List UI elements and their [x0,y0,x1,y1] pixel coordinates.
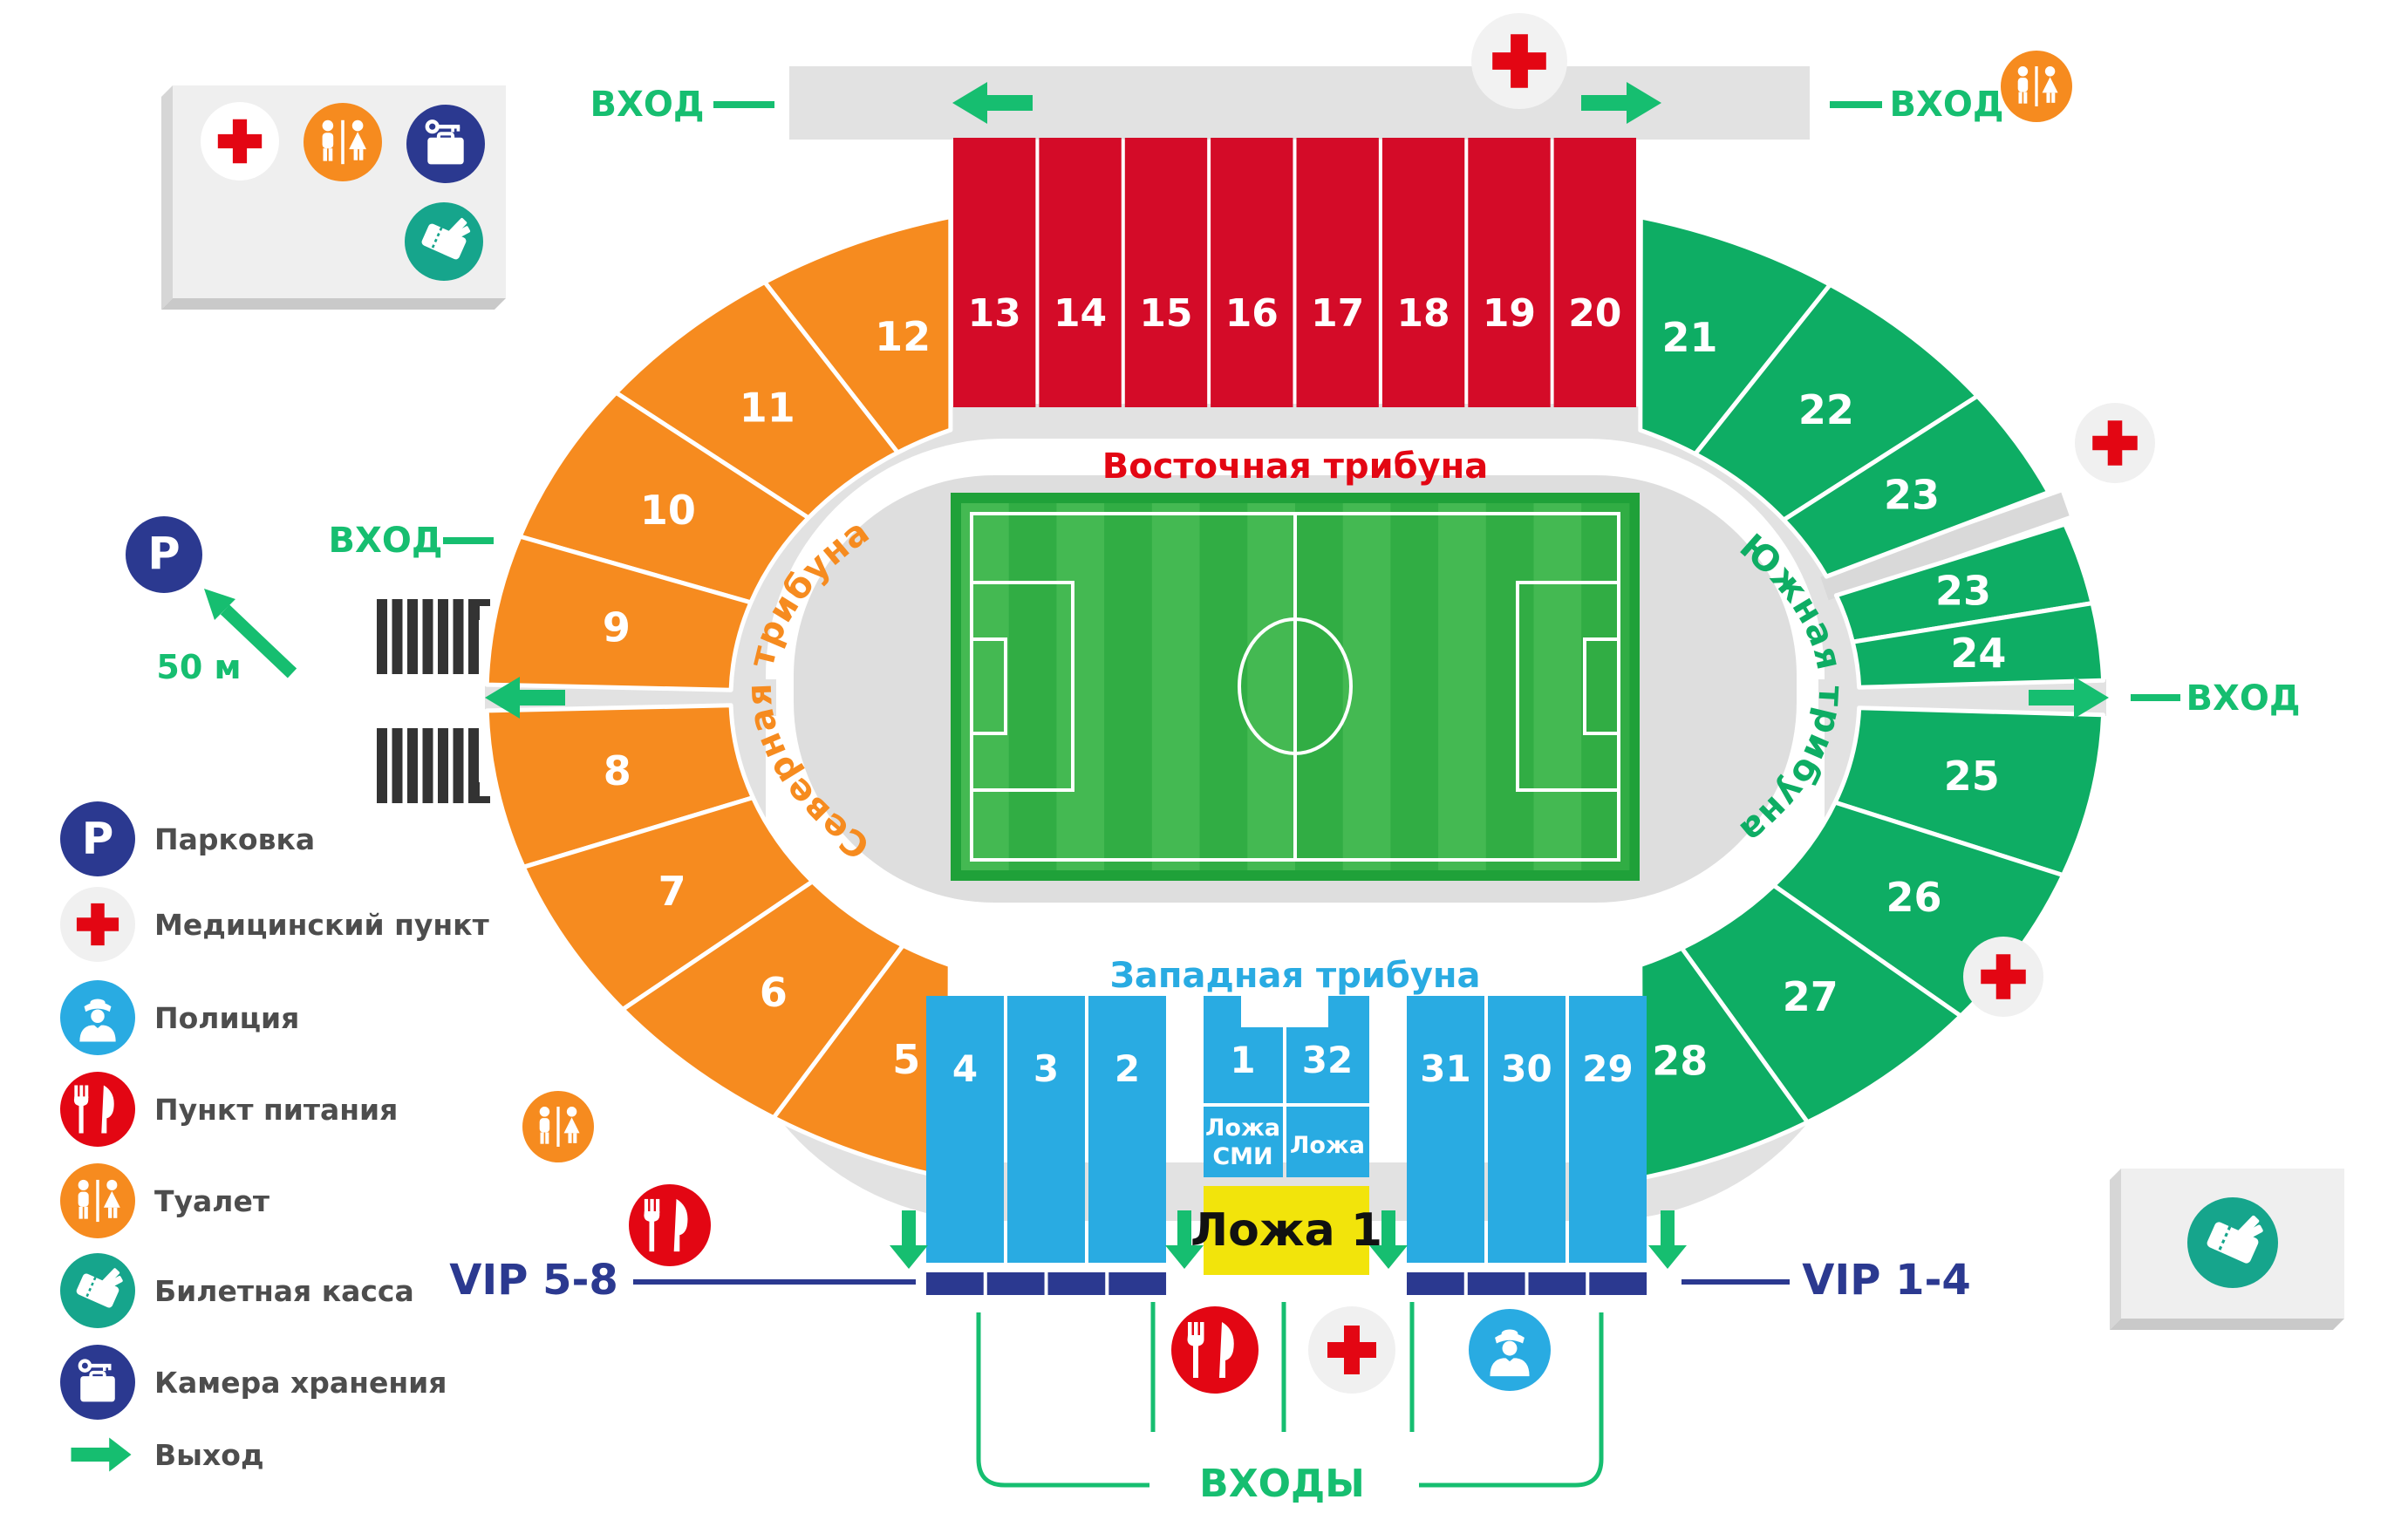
section-8-north-label[interactable]: 8 [604,747,631,794]
section-6-north-label[interactable]: 6 [760,969,788,1016]
vip-5-8-strip[interactable] [1108,1272,1166,1295]
exit-icon [72,1437,132,1471]
section-19-east[interactable] [1468,138,1550,407]
section-30-west-label[interactable]: 30 [1501,1047,1552,1090]
section-2-west-label[interactable]: 2 [1115,1047,1140,1090]
medical-icon [1308,1306,1395,1394]
field-stripe [1390,503,1438,870]
field-stripe [961,503,1009,870]
turnstile-gates [377,599,490,674]
legend-item-exit: Выход [72,1437,264,1472]
vip-1-4-strip[interactable] [1529,1272,1586,1295]
section-28-south-label[interactable]: 28 [1652,1038,1708,1085]
entrance-label-mid-right: ВХОД [2186,678,2301,719]
football-field [951,493,1640,881]
parking-icon-glyph: P [82,813,114,863]
section-17-east-label[interactable]: 17 [1311,291,1364,336]
west-notch [1241,994,1328,1027]
stadium-map: 1211109876521222323242526272813141516171… [0,0,2408,1520]
section-23-south-label[interactable]: 23 [1884,472,1940,519]
legend-label: Билетная касса [154,1274,414,1308]
entrance-label-top-left: ВХОД [590,85,705,125]
field-stripe [1247,503,1295,870]
section-31-west[interactable] [1407,996,1484,1263]
services-box-side [161,85,173,310]
vip-1-4-label[interactable]: VIP 1-4 [1802,1256,1971,1305]
section-20-east-label[interactable]: 20 [1568,291,1621,336]
section-15-east-label[interactable]: 15 [1139,291,1192,336]
parking-icon-glyph: P [147,529,180,581]
food-icon [1171,1306,1259,1394]
entrance-down-arrow-icon [890,1210,928,1269]
field-stripe [1295,503,1343,870]
legend-item-storage: Камера хранения [60,1345,447,1420]
section-2-west[interactable] [1088,996,1166,1263]
legend-item-toilet: Туалет [60,1163,269,1238]
section-3-west[interactable] [1007,996,1085,1263]
section-4-west[interactable] [926,996,1004,1263]
section-23-south-label[interactable]: 23 [1935,568,1991,615]
storage-icon [60,1345,135,1420]
section-24-south-label[interactable]: 24 [1950,630,2006,677]
lodge-media-label[interactable]: Ложа [1205,1114,1280,1142]
section-1-west-label[interactable]: 1 [1230,1039,1255,1081]
toilet-icon-glyph [323,120,366,164]
lodge-plain-label[interactable]: Ложа [1290,1132,1365,1159]
section-13-east[interactable] [953,138,1035,407]
stadium-map-canvas: 1211109876521222323242526272813141516171… [0,0,2408,1520]
lodge-1-label[interactable]: Ложа 1 [1190,1204,1382,1257]
toilet-icon [2001,51,2072,122]
entrances-label: ВХОДЫ [1199,1462,1365,1506]
police-icon [60,980,135,1055]
section-13-east-label[interactable]: 13 [968,291,1021,336]
vip-5-8-label[interactable]: VIP 5-8 [449,1256,618,1305]
parking-icon: P [126,516,202,593]
legend-label: Туалет [154,1184,269,1218]
entrance-down-arrow-icon [1648,1210,1687,1269]
police-icon [1469,1309,1551,1391]
field-stripe [1104,503,1152,870]
section-30-west[interactable] [1488,996,1566,1263]
vip-5-8-strip[interactable] [1048,1272,1106,1295]
legend-label: Камера хранения [154,1366,447,1400]
section-15-east[interactable] [1125,138,1207,407]
section-29-west-label[interactable]: 29 [1582,1047,1633,1090]
section-14-east-label[interactable]: 14 [1054,291,1107,336]
section-7-north-label[interactable]: 7 [658,868,686,915]
east-stand-label: Восточная трибуна [1102,446,1489,487]
section-32-west-label[interactable]: 32 [1302,1039,1353,1081]
section-26-south-label[interactable]: 26 [1886,874,1941,921]
legend-label: Выход [154,1438,264,1472]
parking-icon: P [60,801,135,876]
legend-label: Пункт питания [154,1093,398,1127]
services-box-shadow [161,298,506,310]
tickets-icon [60,1253,135,1328]
section-19-east-label[interactable]: 19 [1483,291,1536,336]
food-icon-bg [629,1184,711,1266]
vip-5-8-strip[interactable] [926,1272,984,1295]
legend-label: Полиция [154,1001,299,1035]
section-18-east[interactable] [1382,138,1464,407]
section-20-east[interactable] [1554,138,1636,407]
legend-item-medical: Медицинский пункт [60,887,489,962]
ticket-office-box-shadow [2110,1319,2344,1330]
medical-icon [1963,937,2043,1017]
section-27-south-label[interactable]: 27 [1783,973,1838,1020]
entrances-bracket [979,1312,1149,1485]
parking-letter: P [82,813,114,863]
section-17-east[interactable] [1297,138,1379,407]
field-stripe [1581,503,1629,870]
vip-1-4-strip[interactable] [1407,1272,1464,1295]
toilet-icon [304,103,382,181]
storage-icon [406,105,485,183]
field-stripe [1056,503,1104,870]
section-25-south-label[interactable]: 25 [1944,753,2000,800]
entrance-label-top-right: ВХОД [1890,85,2004,125]
toilet-icon [60,1163,135,1238]
field-stripe [1152,503,1200,870]
entrance-label-mid-left: ВХОД [329,521,443,561]
section-11-north-label[interactable]: 11 [740,385,795,432]
tickets-icon [405,202,483,281]
section-29-west[interactable] [1569,996,1647,1263]
tickets-icon [2187,1197,2278,1288]
food-icon [629,1184,711,1266]
food-icon-bg [1171,1306,1259,1394]
section-12-north-label[interactable]: 12 [875,313,931,360]
section-4-west-label[interactable]: 4 [952,1047,978,1090]
vip-1-4-strip[interactable] [1589,1272,1647,1295]
medical-icon [201,102,279,181]
section-16-east-label[interactable]: 16 [1225,291,1279,336]
medical-icon [1471,13,1567,109]
section-5-north-label[interactable]: 5 [892,1036,920,1083]
legend-item-food: Пункт питания [60,1072,398,1147]
section-14-east[interactable] [1039,138,1121,407]
legend-label: Парковка [154,822,315,856]
legend-item-tickets: Билетная касса [60,1253,414,1328]
section-10-north-label[interactable]: 10 [640,487,696,534]
turnstile-gates [377,728,490,803]
vip-1-4-strip[interactable] [1468,1272,1525,1295]
section-16-east[interactable] [1211,138,1293,407]
medical-icon [60,887,135,962]
section-21-south-label[interactable]: 21 [1661,314,1717,361]
field-stripe [1009,503,1057,870]
lodge-media-label2[interactable]: СМИ [1212,1143,1272,1170]
vip-5-8-strip[interactable] [987,1272,1045,1295]
parking-distance-label: 50 м [156,648,241,686]
medical-icon [2075,403,2155,483]
food-icon-bg [60,1072,135,1147]
west-stand-label: Западная трибуна [1109,956,1480,996]
field-stripe [1534,503,1582,870]
section-18-east-label[interactable]: 18 [1396,291,1450,336]
food-icon [60,1072,135,1147]
legend-label: Медицинский пункт [154,908,489,942]
section-3-west-label[interactable]: 3 [1033,1047,1059,1090]
field-stripe [1438,503,1486,870]
toilet-icon [522,1091,594,1162]
parking-letter: P [147,529,180,581]
legend-item-police: Полиция [60,980,299,1055]
field-stripe [1486,503,1534,870]
section-22-south-label[interactable]: 22 [1798,386,1854,433]
ticket-office-box-side [2110,1169,2121,1330]
legend-item-parking: PПарковка [60,801,315,876]
section-31-west-label[interactable]: 31 [1420,1047,1470,1090]
section-9-north-label[interactable]: 9 [603,604,631,651]
